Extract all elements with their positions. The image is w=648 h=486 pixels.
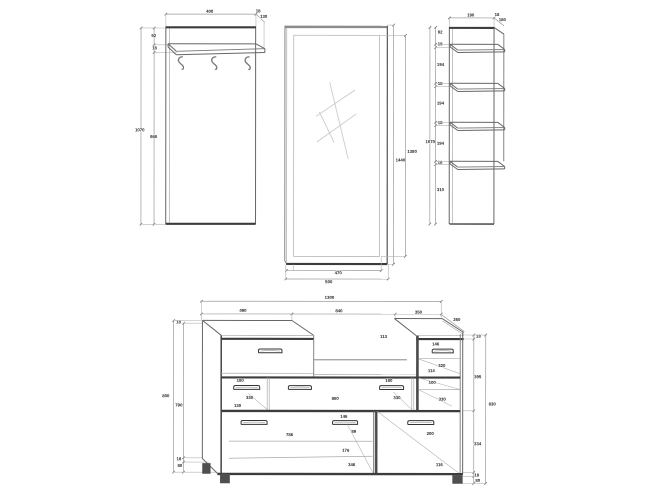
svg-text:470: 470 bbox=[335, 270, 343, 275]
svg-text:1380: 1380 bbox=[407, 149, 417, 154]
svg-text:113: 113 bbox=[380, 334, 388, 339]
svg-text:786: 786 bbox=[286, 432, 294, 437]
svg-text:346: 346 bbox=[348, 462, 356, 467]
svg-text:18: 18 bbox=[152, 45, 157, 50]
svg-text:130: 130 bbox=[234, 403, 242, 408]
svg-text:980: 980 bbox=[150, 134, 158, 139]
svg-text:180: 180 bbox=[385, 378, 393, 383]
svg-text:18: 18 bbox=[176, 456, 181, 461]
svg-text:100: 100 bbox=[429, 380, 437, 385]
svg-text:400: 400 bbox=[206, 9, 214, 14]
svg-text:114: 114 bbox=[428, 368, 436, 373]
svg-text:92: 92 bbox=[151, 33, 156, 38]
svg-text:1070: 1070 bbox=[425, 139, 435, 144]
svg-text:500: 500 bbox=[325, 279, 333, 284]
svg-text:310: 310 bbox=[437, 187, 445, 192]
svg-text:1440: 1440 bbox=[396, 157, 406, 162]
svg-text:334: 334 bbox=[474, 441, 482, 446]
svg-text:200: 200 bbox=[427, 431, 435, 436]
svg-text:194: 194 bbox=[437, 101, 445, 106]
svg-text:146: 146 bbox=[340, 414, 348, 419]
svg-text:180: 180 bbox=[499, 17, 507, 22]
svg-text:89: 89 bbox=[351, 429, 356, 434]
svg-text:18: 18 bbox=[438, 160, 443, 165]
svg-text:176: 176 bbox=[342, 448, 350, 453]
svg-text:80: 80 bbox=[178, 463, 183, 468]
svg-text:18: 18 bbox=[474, 473, 479, 478]
svg-text:490: 490 bbox=[239, 308, 247, 313]
svg-text:790: 790 bbox=[175, 402, 183, 407]
svg-text:190: 190 bbox=[467, 12, 475, 17]
svg-text:830: 830 bbox=[489, 402, 497, 407]
svg-text:860: 860 bbox=[332, 396, 340, 401]
svg-text:320: 320 bbox=[438, 363, 446, 368]
svg-text:260: 260 bbox=[453, 317, 461, 322]
svg-text:18: 18 bbox=[256, 8, 261, 13]
svg-text:116: 116 bbox=[436, 462, 444, 467]
svg-text:1300: 1300 bbox=[325, 295, 335, 300]
svg-text:194: 194 bbox=[437, 62, 445, 67]
svg-text:1070: 1070 bbox=[135, 127, 145, 132]
svg-text:194: 194 bbox=[437, 141, 445, 146]
svg-text:18: 18 bbox=[476, 334, 481, 339]
svg-text:146: 146 bbox=[432, 341, 440, 346]
svg-text:800: 800 bbox=[162, 393, 170, 398]
svg-text:330: 330 bbox=[393, 395, 401, 400]
svg-text:130: 130 bbox=[260, 14, 268, 19]
svg-text:92: 92 bbox=[438, 29, 443, 34]
svg-text:350: 350 bbox=[415, 310, 423, 315]
svg-text:330: 330 bbox=[246, 395, 254, 400]
svg-text:180: 180 bbox=[237, 378, 245, 383]
svg-text:80: 80 bbox=[475, 478, 480, 483]
svg-text:18: 18 bbox=[176, 319, 181, 324]
svg-text:330: 330 bbox=[439, 397, 447, 402]
svg-text:395: 395 bbox=[474, 374, 482, 379]
svg-text:840: 840 bbox=[335, 308, 343, 313]
svg-text:18: 18 bbox=[438, 120, 443, 125]
svg-text:18: 18 bbox=[438, 41, 443, 46]
